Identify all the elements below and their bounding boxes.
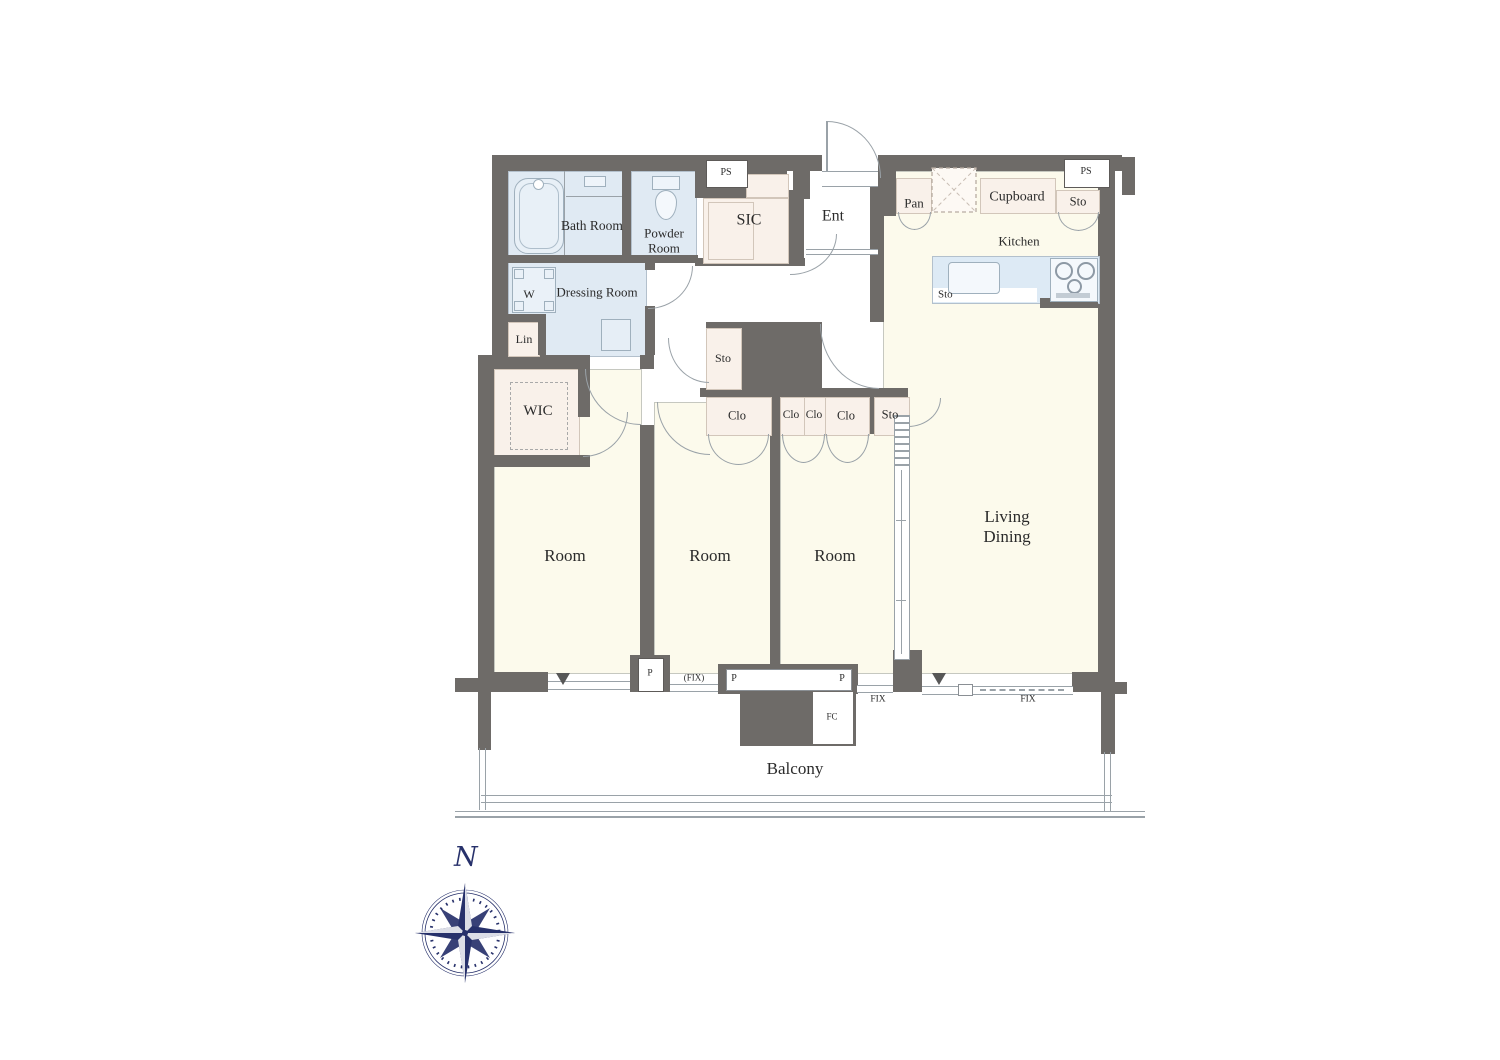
wall-segment — [492, 155, 822, 171]
structural-block — [740, 694, 812, 746]
wall-segment — [1098, 171, 1115, 672]
balcony-side-line — [479, 748, 486, 810]
cupboard-label: Cupboard — [989, 190, 1044, 207]
kitchen-label: Kitchen — [998, 233, 1039, 248]
floor-plan: Bath Room Powder Room SIC Ent PS PS Pan … — [0, 0, 1500, 1060]
powder-room-label: Powder Room — [632, 226, 696, 257]
closet-label: Clo — [783, 409, 800, 423]
partition-tick — [896, 520, 906, 521]
fix-label: (FIX) — [684, 673, 705, 684]
storage-label: Sto — [1070, 195, 1087, 210]
direction-marker — [932, 673, 946, 685]
shower-fixture — [584, 176, 606, 187]
wall-segment — [770, 397, 780, 672]
partition-line — [901, 470, 902, 654]
wall-segment — [1072, 672, 1115, 692]
wall-segment — [1122, 157, 1135, 195]
door-arc-hall — [790, 234, 837, 275]
door-arc-living — [820, 324, 879, 389]
washer-corner — [544, 301, 554, 311]
door-arc-corridor — [668, 338, 709, 383]
entrance-door-leaf — [826, 121, 828, 177]
balcony-edge-line — [455, 811, 1145, 812]
kitchen-sink — [948, 262, 1000, 294]
partition-track — [894, 415, 910, 467]
room-label: Room — [689, 546, 731, 566]
wall-segment — [870, 171, 884, 322]
pantry-label: Pan — [904, 195, 924, 210]
wall-segment — [478, 355, 590, 369]
direction-marker — [556, 673, 570, 685]
balcony-edge-line — [455, 816, 1145, 818]
wall-segment — [645, 306, 655, 355]
closet-label: Clo — [728, 409, 746, 424]
fix-label: FIX — [870, 694, 885, 705]
room-label: Room — [544, 546, 586, 566]
closet-label: Clo — [806, 409, 823, 423]
wall-segment — [478, 455, 590, 467]
window-dashed-line — [980, 689, 1064, 693]
wall-segment — [640, 425, 654, 672]
pillar — [478, 692, 491, 750]
north-label: N — [453, 842, 479, 873]
stove-grill — [1056, 293, 1090, 298]
bathtub-inner — [519, 183, 559, 249]
wall-segment — [538, 314, 546, 355]
balcony-side-line — [1104, 752, 1111, 812]
storage-label: Sto — [715, 351, 731, 365]
sic-shoe-shelf — [746, 174, 789, 198]
bath-counter-line — [566, 196, 622, 197]
fix-label: FIX — [1020, 694, 1035, 705]
refrigerator-space — [930, 166, 978, 214]
pillar-label: P — [647, 668, 652, 679]
pillar-label: P — [839, 673, 845, 685]
sic-label: SIC — [737, 212, 762, 231]
bath-divider-line — [564, 171, 565, 255]
wall-segment — [455, 678, 478, 692]
window-latch — [958, 684, 973, 696]
washer-corner — [514, 269, 524, 279]
washer-corner — [514, 301, 524, 311]
wall-segment — [1115, 682, 1127, 694]
room-label: Room — [814, 546, 856, 566]
sliding-partition — [894, 465, 910, 660]
bath-room-label: Bath Room — [561, 218, 623, 234]
fc-label: FC — [826, 712, 837, 723]
compass-rose: N — [402, 838, 532, 998]
dressing-stool — [601, 319, 631, 351]
toilet-tank — [652, 176, 680, 190]
wall-segment — [478, 672, 548, 692]
washer-corner — [544, 269, 554, 279]
linen-label: Lin — [516, 332, 533, 346]
dressing-room-label: Dressing Room — [554, 284, 640, 299]
balcony-railing — [481, 795, 1112, 796]
ps-label: PS — [720, 167, 731, 179]
window-fix — [670, 684, 718, 692]
door-arc-dressing — [648, 266, 693, 309]
storage-label: Sto — [938, 289, 953, 302]
bath-faucet — [533, 179, 544, 190]
wall-segment — [883, 171, 896, 216]
entrance-label: Ent — [822, 208, 844, 227]
pillar-label: P — [731, 673, 737, 685]
wall-segment — [492, 171, 508, 365]
living-dining-label: Living Dining — [967, 507, 1047, 547]
ps-label: PS — [1080, 166, 1091, 178]
entrance-threshold — [822, 171, 878, 187]
pillar-box — [726, 669, 852, 691]
closet-label: Clo — [837, 409, 855, 424]
washer-label: W — [523, 287, 534, 301]
stove-burner — [1077, 262, 1095, 280]
wall-segment — [478, 355, 494, 692]
balcony-label: Balcony — [767, 759, 824, 779]
entrance-door-arc — [827, 121, 881, 178]
window — [857, 685, 893, 693]
partition-tick — [896, 600, 906, 601]
balcony-railing — [481, 802, 1112, 803]
wall-segment — [622, 171, 631, 255]
stove-burner — [1055, 262, 1073, 280]
wall-segment — [640, 355, 654, 369]
pillar — [1101, 692, 1115, 754]
wic-label: WIC — [523, 403, 552, 421]
storage-label: Sto — [882, 408, 899, 423]
stove-burner — [1067, 279, 1082, 294]
structural-block — [740, 322, 822, 395]
